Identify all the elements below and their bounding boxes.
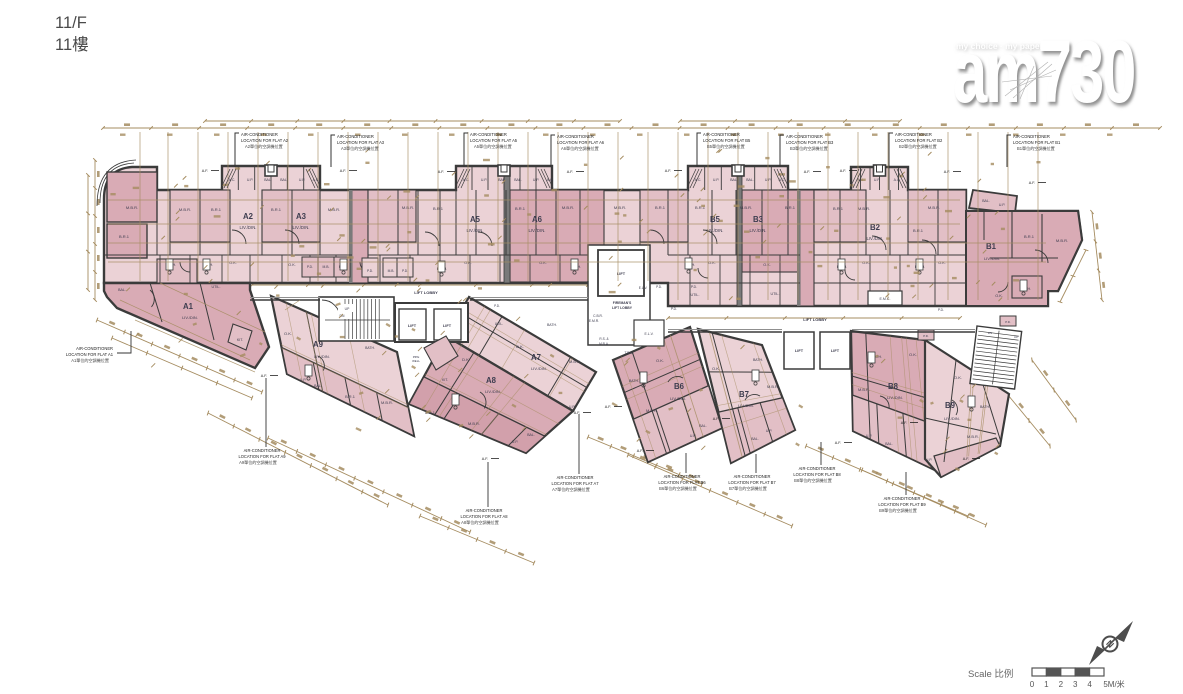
svg-text:B7: B7 [739, 390, 749, 399]
svg-text:A.F.: A.F. [261, 374, 268, 378]
svg-text:P.D.: P.D. [494, 304, 500, 308]
svg-text:A.F.: A.F. [202, 169, 209, 173]
svg-text:BAL.: BAL. [982, 199, 990, 203]
svg-text:U.P.: U.P. [299, 178, 306, 182]
svg-text:B1: B1 [986, 242, 997, 251]
svg-text:LOCATION FOR FLAT B2: LOCATION FOR FLAT B2 [895, 138, 943, 143]
svg-text:LIV./DIN.: LIV./DIN. [944, 416, 960, 421]
svg-text:11/F: 11/F [55, 14, 87, 32]
svg-text:BAL.: BAL. [280, 178, 288, 182]
svg-text:LIV./DIN.: LIV./DIN. [866, 236, 883, 241]
svg-text:A6單位的空調機位置: A6單位的空調機位置 [561, 145, 599, 151]
svg-text:LIV./DIN.: LIV./DIN. [239, 225, 256, 230]
svg-text:LOCATION FOR FLAT B5: LOCATION FOR FLAT B5 [703, 138, 751, 143]
svg-text:B6單位的空調機位置: B6單位的空調機位置 [659, 485, 697, 491]
svg-text:B3單位的空調機位置: B3單位的空調機位置 [790, 145, 828, 151]
svg-text:P.D.: P.D. [923, 334, 929, 338]
svg-text:A8: A8 [486, 376, 497, 385]
svg-text:M.B.R.: M.B.R. [562, 205, 574, 210]
svg-text:11樓: 11樓 [55, 35, 89, 54]
svg-text:LOCATION FOR FLAT A1: LOCATION FOR FLAT A1 [66, 352, 114, 357]
svg-text:B6: B6 [674, 382, 685, 391]
svg-text:LIFT: LIFT [443, 323, 452, 328]
svg-text:B5: B5 [710, 215, 721, 224]
svg-text:U.P.: U.P. [690, 434, 697, 438]
svg-text:5M/米: 5M/米 [1103, 679, 1124, 689]
svg-text:A.F.: A.F. [482, 457, 489, 461]
svg-text:M.B.R.: M.B.R. [614, 205, 626, 210]
svg-text:P.D.: P.D. [656, 285, 662, 289]
svg-text:A3: A3 [296, 212, 307, 221]
svg-text:A.F.: A.F. [963, 457, 970, 461]
svg-text:LIV./DIN.: LIV./DIN. [292, 225, 309, 230]
svg-text:E.M.C.: E.M.C. [880, 297, 891, 301]
svg-text:M.B.R.: M.B.R. [646, 408, 658, 413]
svg-text:A.F.: A.F. [665, 169, 672, 173]
svg-text:A7: A7 [531, 353, 541, 362]
svg-text:LOCATION FOR FLAT B6: LOCATION FOR FLAT B6 [658, 480, 706, 485]
svg-text:LIV./DIN.: LIV./DIN. [738, 403, 754, 408]
svg-text:BATH.: BATH. [629, 379, 639, 383]
svg-text:LIV./DIN.: LIV./DIN. [182, 315, 198, 320]
svg-text:E.L.V.: E.L.V. [645, 332, 654, 336]
svg-text:BAL.: BAL. [314, 384, 322, 388]
svg-text:LOCATION FOR FLAT A8: LOCATION FOR FLAT A8 [460, 514, 508, 519]
svg-text:M.B.R.: M.B.R. [1056, 238, 1068, 243]
svg-text:M.B.R.: M.B.R. [967, 434, 979, 439]
svg-text:U.P.: U.P. [766, 429, 773, 433]
svg-text:M.B.R.: M.B.R. [381, 400, 393, 405]
svg-text:M.B.R.: M.B.R. [858, 206, 870, 211]
svg-text:M.B.: M.B. [323, 265, 330, 269]
svg-text:M.B.R.: M.B.R. [858, 387, 870, 392]
svg-text:P.D.: P.D. [671, 307, 677, 311]
svg-text:BAL.: BAL. [527, 433, 535, 437]
svg-text:A5: A5 [470, 215, 481, 224]
svg-text:A9單位的空調機位置: A9單位的空調機位置 [239, 459, 277, 465]
svg-text:U.P.: U.P. [866, 434, 873, 438]
svg-text:M.B.R.: M.B.R. [126, 205, 138, 210]
svg-text:BAL.: BAL. [751, 437, 759, 441]
svg-text:AIR-CONDITIONER: AIR-CONDITIONER [884, 496, 921, 501]
svg-text:U.P.: U.P. [999, 203, 1006, 207]
svg-text:AIR-CONDITIONER: AIR-CONDITIONER [664, 474, 701, 479]
svg-text:B.R.1: B.R.1 [655, 205, 666, 210]
svg-text:U.P.: U.P. [713, 178, 720, 182]
svg-text:A6: A6 [532, 215, 543, 224]
svg-text:A.F.: A.F. [840, 169, 847, 173]
svg-text:C.B.R.: C.B.R. [593, 314, 603, 318]
svg-text:O.K.: O.K. [656, 358, 664, 363]
svg-text:LOCATION FOR FLAT B1: LOCATION FOR FLAT B1 [1013, 140, 1061, 145]
svg-text:LIV./DIN.: LIV./DIN. [984, 256, 1000, 261]
svg-text:O.K.: O.K. [712, 366, 720, 371]
svg-text:B2單位的空調機位置: B2單位的空調機位置 [899, 143, 937, 149]
svg-text:A2: A2 [243, 212, 254, 221]
svg-text:B.R.1: B.R.1 [433, 206, 444, 211]
svg-text:0: 0 [1030, 680, 1035, 689]
svg-text:A.F.: A.F. [574, 411, 581, 415]
svg-text:U.P.: U.P. [512, 440, 519, 444]
svg-text:AIR-CONDITIONER: AIR-CONDITIONER [786, 134, 823, 139]
svg-text:A5單位的空調機位置: A5單位的空調機位置 [474, 143, 512, 149]
svg-text:A.F.: A.F. [567, 170, 574, 174]
svg-text:BAL.: BAL. [118, 288, 126, 292]
svg-text:T.B.S.: T.B.S. [624, 351, 633, 355]
svg-text:B.R.1: B.R.1 [833, 206, 844, 211]
svg-text:B2: B2 [870, 223, 881, 232]
svg-text:A3單位的空調機位置: A3單位的空調機位置 [341, 145, 379, 151]
svg-text:B7單位的空調機位置: B7單位的空調機位置 [729, 485, 767, 491]
svg-text:B9: B9 [945, 401, 956, 410]
svg-text:B3: B3 [753, 215, 764, 224]
svg-text:B1單位的空調機位置: B1單位的空調機位置 [1017, 145, 1055, 151]
svg-text:AIR-CONDITIONER: AIR-CONDITIONER [241, 132, 278, 137]
svg-text:R.S. &: R.S. & [599, 337, 609, 341]
svg-text:LIV./DIN.: LIV./DIN. [749, 228, 766, 233]
svg-text:O.K.: O.K. [862, 261, 869, 265]
svg-text:AIR-CONDITIONER: AIR-CONDITIONER [1013, 134, 1050, 139]
svg-text:AIR-CONDITIONER: AIR-CONDITIONER [703, 132, 740, 137]
svg-text:U.P.: U.P. [481, 178, 488, 182]
svg-text:D.K.: D.K. [516, 344, 524, 349]
svg-text:AIR-CONDITIONER: AIR-CONDITIONER [895, 132, 932, 137]
svg-text:BATH.: BATH. [365, 346, 375, 350]
svg-text:LIV./DIN.: LIV./DIN. [485, 389, 501, 394]
svg-text:LOCATION FOR FLAT A9: LOCATION FOR FLAT A9 [238, 454, 286, 459]
svg-text:U.P.: U.P. [874, 178, 881, 182]
svg-text:BAL.: BAL. [264, 178, 272, 182]
svg-text:LIFT: LIFT [831, 348, 840, 353]
svg-text:O.K.: O.K. [284, 331, 292, 336]
svg-text:UTIL.: UTIL. [770, 292, 779, 296]
svg-text:O.K.: O.K. [763, 263, 770, 267]
svg-text:AIR-CONDITIONER: AIR-CONDITIONER [557, 475, 594, 480]
svg-text:AIR-CONDITIONER: AIR-CONDITIONER [466, 508, 503, 513]
svg-text:UTIL.: UTIL. [211, 285, 220, 289]
svg-text:A.C.: A.C. [463, 178, 470, 182]
svg-text:B.R.1: B.R.1 [785, 205, 796, 210]
svg-text:O.K.: O.K. [708, 261, 715, 265]
svg-text:M.B.R.: M.B.R. [767, 384, 779, 389]
svg-text:P.D.: P.D. [1005, 320, 1011, 324]
svg-text:B8: B8 [888, 382, 899, 391]
svg-text:M.B.R.: M.B.R. [468, 421, 480, 426]
svg-text:BATH.: BATH. [547, 323, 557, 327]
svg-text:M.B.R.: M.B.R. [328, 207, 340, 212]
svg-text:UP: UP [345, 307, 350, 311]
svg-text:A1單位的空調機位置: A1單位的空調機位置 [71, 357, 109, 363]
svg-text:LOCATION FOR FLAT A2: LOCATION FOR FLAT A2 [241, 138, 289, 143]
svg-text:B8單位的空調機位置: B8單位的空調機位置 [794, 477, 832, 483]
svg-text:E.M.R.: E.M.R. [589, 319, 599, 323]
svg-text:A.C.: A.C. [229, 178, 236, 182]
svg-text:O.K.: O.K. [954, 375, 962, 380]
svg-text:LOCATION FOR FLAT A5: LOCATION FOR FLAT A5 [470, 138, 518, 143]
svg-text:AIR-CONDITIONER: AIR-CONDITIONER [76, 346, 113, 351]
svg-text:A.F.: A.F. [1029, 181, 1036, 185]
svg-text:LOCATION FOR FLAT A7: LOCATION FOR FLAT A7 [551, 481, 599, 486]
svg-text:P.D.: P.D. [402, 269, 408, 273]
svg-text:LOCATION FOR FLAT B3: LOCATION FOR FLAT B3 [786, 140, 834, 145]
svg-text:A.C.: A.C. [695, 178, 702, 182]
svg-text:O.K.: O.K. [229, 261, 236, 265]
svg-text:P.D.: P.D. [691, 285, 697, 289]
svg-text:B.R.1: B.R.1 [271, 207, 282, 212]
svg-text:O.K.: O.K. [288, 263, 295, 267]
svg-text:LIFT: LIFT [795, 348, 804, 353]
svg-text:M.R.A.: M.R.A. [599, 342, 609, 346]
svg-text:U.P.: U.P. [926, 458, 933, 462]
svg-text:LOCATION FOR FLAT B8: LOCATION FOR FLAT B8 [793, 472, 841, 477]
svg-text:AIR-CONDITIONER: AIR-CONDITIONER [734, 474, 771, 479]
svg-text:O.K.: O.K. [539, 261, 546, 265]
svg-text:LIV./DIN.: LIV./DIN. [466, 228, 483, 233]
svg-text:O.K.: O.K. [938, 261, 945, 265]
svg-text:BAL.: BAL. [746, 178, 754, 182]
svg-text:4: 4 [1087, 680, 1092, 689]
svg-text:UTIL.: UTIL. [495, 322, 504, 326]
svg-text:Scale 比例: Scale 比例 [968, 668, 1013, 680]
svg-text:LIFT: LIFT [408, 323, 417, 328]
svg-text:LIV./DIN.: LIV./DIN. [314, 354, 330, 359]
svg-text:E.L.V.: E.L.V. [639, 286, 648, 290]
svg-text:AIR-CONDITIONER: AIR-CONDITIONER [557, 134, 594, 139]
svg-text:B.R.1: B.R.1 [211, 207, 222, 212]
svg-text:A.F.: A.F. [944, 170, 951, 174]
svg-text:1: 1 [1044, 680, 1049, 689]
svg-text:P.D.: P.D. [367, 269, 373, 273]
svg-text:P.D.: P.D. [307, 265, 313, 269]
svg-text:LIV./DIN.: LIV./DIN. [528, 228, 545, 233]
svg-text:BAL.: BAL. [730, 178, 738, 182]
svg-text:AIR-CONDITIONER: AIR-CONDITIONER [337, 134, 374, 139]
svg-text:2: 2 [1059, 680, 1064, 689]
svg-text:LIV./DIN.: LIV./DIN. [531, 366, 547, 371]
svg-text:M.B.R.: M.B.R. [928, 205, 940, 210]
svg-text:FIREMAN'S: FIREMAN'S [613, 301, 632, 305]
svg-text:3: 3 [1073, 680, 1078, 689]
svg-text:A.F.: A.F. [605, 405, 612, 409]
svg-text:am730: am730 [953, 23, 1135, 121]
svg-text:P.D.: P.D. [938, 308, 944, 312]
svg-text:A.F.: A.F. [804, 170, 811, 174]
svg-text:BAL.: BAL. [514, 178, 522, 182]
svg-text:O.K.: O.K. [909, 352, 917, 357]
svg-text:A.F.: A.F. [713, 417, 720, 421]
svg-text:U.P.: U.P. [247, 178, 254, 182]
svg-text:BAL.: BAL. [885, 442, 893, 446]
svg-text:A.F.: A.F. [637, 449, 644, 453]
svg-text:D.K.: D.K. [462, 357, 470, 362]
svg-text:A.F.: A.F. [901, 421, 908, 425]
svg-text:AIR-CONDITIONER: AIR-CONDITIONER [799, 466, 836, 471]
svg-text:LOCATION FOR FLAT B7: LOCATION FOR FLAT B7 [728, 480, 776, 485]
svg-text:B5單位的空調機位置: B5單位的空調機位置 [707, 143, 745, 149]
svg-text:B.R.1: B.R.1 [913, 228, 924, 233]
svg-text:KIT.: KIT. [442, 378, 448, 382]
svg-text:BAL.: BAL. [699, 424, 707, 428]
svg-text:WELL: WELL [412, 359, 420, 363]
svg-text:A2單位的空調機位置: A2單位的空調機位置 [245, 143, 283, 149]
svg-text:U.P.: U.P. [533, 178, 540, 182]
svg-text:A.F.: A.F. [438, 170, 445, 174]
svg-text:LIV./DIN.: LIV./DIN. [670, 396, 686, 401]
svg-text:LIFT LOBBY: LIFT LOBBY [612, 306, 633, 310]
svg-text:BATH.: BATH. [753, 358, 763, 362]
svg-text:UP: UP [1014, 335, 1018, 339]
svg-text:M.B.R.: M.B.R. [569, 359, 581, 364]
svg-text:B9單位的空調機位置: B9單位的空調機位置 [879, 507, 917, 513]
svg-text:LOCATION FOR FLAT A6: LOCATION FOR FLAT A6 [557, 140, 605, 145]
svg-text:B.R.1: B.R.1 [119, 234, 130, 239]
svg-text:LOCATION FOR FLAT A3: LOCATION FOR FLAT A3 [337, 140, 385, 145]
svg-text:UTIL.: UTIL. [690, 293, 699, 297]
svg-text:LIV./DIN.: LIV./DIN. [706, 228, 723, 233]
svg-text:AIR-CONDITIONER: AIR-CONDITIONER [470, 132, 507, 137]
svg-text:AIR-CONDITIONER: AIR-CONDITIONER [244, 448, 281, 453]
svg-text:BATH.: BATH. [980, 405, 990, 409]
svg-text:M.B.R.: M.B.R. [740, 205, 752, 210]
svg-text:A8單位的空調機位置: A8單位的空調機位置 [461, 519, 499, 525]
svg-text:LIFT LOBBY: LIFT LOBBY [803, 317, 827, 322]
svg-text:B.R.1: B.R.1 [515, 206, 526, 211]
svg-text:KIT.: KIT. [237, 338, 243, 342]
svg-text:DN: DN [988, 331, 992, 335]
svg-text:A.F.: A.F. [340, 169, 347, 173]
svg-text:M.B.: M.B. [388, 269, 395, 273]
svg-text:U.P.: U.P. [300, 378, 307, 382]
svg-text:A1: A1 [183, 302, 194, 311]
svg-text:A7單位的空調機位置: A7單位的空調機位置 [552, 486, 590, 492]
svg-text:B.R.1: B.R.1 [345, 394, 355, 399]
svg-text:M.B.R.: M.B.R. [179, 207, 191, 212]
svg-text:LIV./DIN.: LIV./DIN. [887, 395, 903, 400]
svg-text:A.F.: A.F. [835, 441, 842, 445]
svg-text:LOCATION FOR FLAT B9: LOCATION FOR FLAT B9 [878, 502, 926, 507]
svg-text:B.R.1: B.R.1 [1024, 234, 1035, 239]
